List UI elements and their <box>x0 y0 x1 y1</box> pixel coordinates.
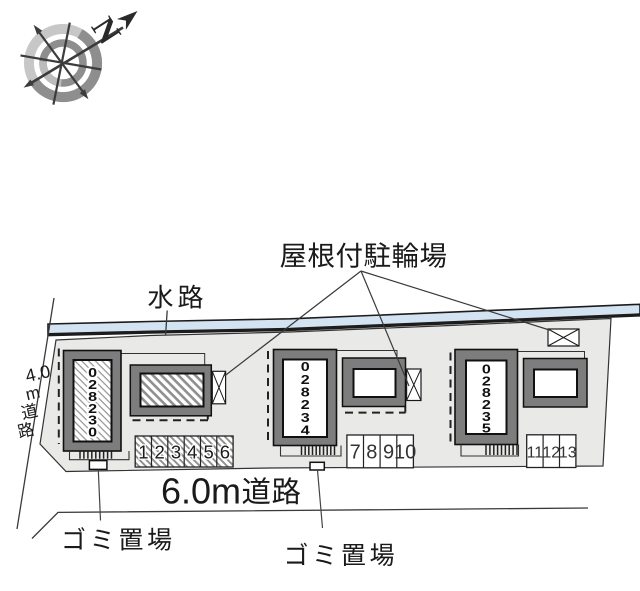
svg-text:9: 9 <box>383 442 394 464</box>
svg-text:6: 6 <box>220 442 230 463</box>
svg-text:4: 4 <box>187 442 197 463</box>
svg-text:5: 5 <box>482 422 491 436</box>
svg-text:7: 7 <box>350 442 361 464</box>
svg-text:8: 8 <box>366 442 377 464</box>
svg-text:5: 5 <box>203 442 213 463</box>
svg-text:6.0m: 6.0m <box>161 471 241 512</box>
svg-text:1: 1 <box>138 442 148 463</box>
svg-text:13: 13 <box>559 445 577 462</box>
svg-text:0: 0 <box>88 426 97 440</box>
svg-text:11: 11 <box>527 445 544 462</box>
svg-text:12: 12 <box>542 445 560 462</box>
svg-text:2: 2 <box>155 442 165 463</box>
svg-text:3: 3 <box>171 442 181 463</box>
svg-text:4: 4 <box>301 424 311 438</box>
svg-text:10: 10 <box>394 442 416 464</box>
